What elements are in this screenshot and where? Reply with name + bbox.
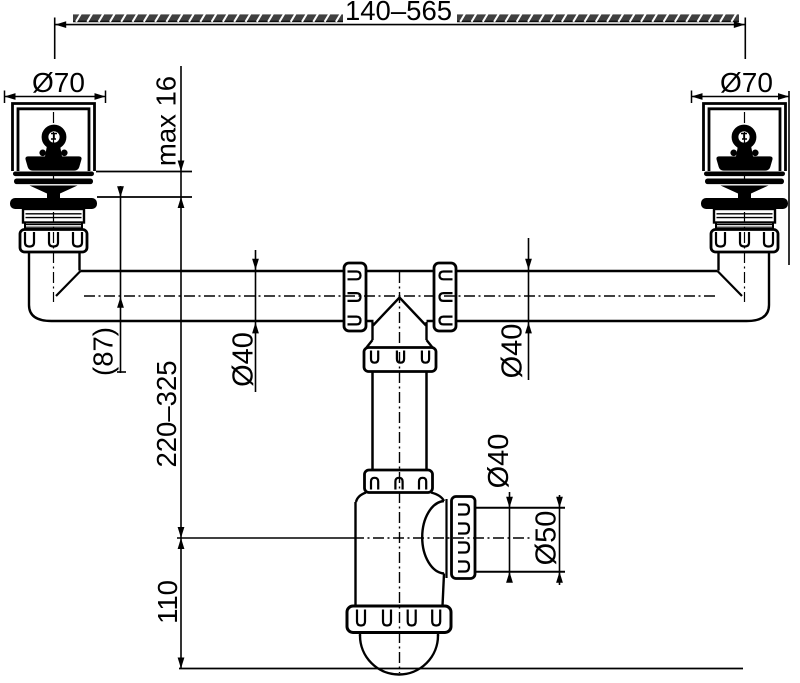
svg-text:Ø70: Ø70	[32, 67, 85, 98]
svg-text:140–565: 140–565	[345, 0, 452, 26]
svg-text:max 16: max 16	[151, 76, 182, 166]
svg-text:Ø40: Ø40	[497, 324, 529, 379]
svg-text:Ø40: Ø40	[483, 434, 515, 489]
svg-text:(87): (87)	[88, 327, 119, 376]
svg-text:220–325: 220–325	[151, 360, 182, 467]
svg-text:Ø70: Ø70	[720, 67, 773, 98]
svg-text:110: 110	[152, 580, 183, 624]
svg-text:Ø50: Ø50	[531, 511, 563, 566]
